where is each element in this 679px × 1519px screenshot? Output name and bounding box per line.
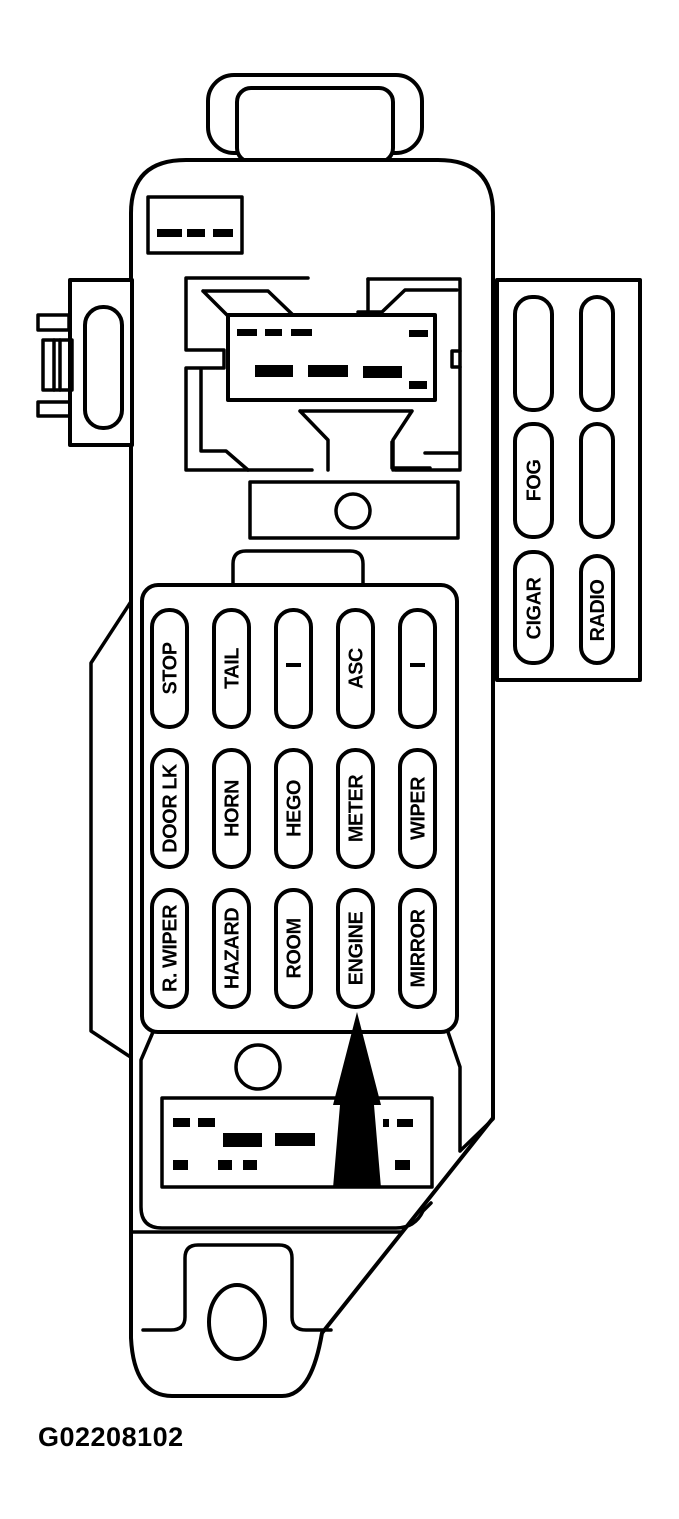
- accessory-panel: FOG CIGAR RADIO: [497, 280, 640, 680]
- top-tab-inner: [237, 88, 393, 162]
- cross-bar: [250, 482, 458, 538]
- fuse-box-diagram: FOG CIGAR RADIO: [0, 0, 679, 1519]
- connector-pin-dash: [237, 329, 257, 336]
- connector-pin-dash: [223, 1133, 262, 1147]
- connector-pin-dash: [255, 365, 293, 377]
- fuse-label: METER: [345, 774, 367, 843]
- connector-pin-dash: [363, 366, 402, 378]
- connector-pin-dash: [218, 1160, 232, 1170]
- fuse-label: ROOM: [283, 918, 305, 978]
- fuse-label: ENGINE: [345, 912, 367, 986]
- fuse-slot-blank: [400, 610, 435, 727]
- blank-fuse-dash: [410, 663, 425, 667]
- connector-pin-dash: [173, 1160, 188, 1170]
- connector-pin-dash: [409, 330, 428, 337]
- fuse-label-cigar: CIGAR: [523, 576, 545, 639]
- fuse-label-fog: FOG: [523, 460, 545, 502]
- connector-pin-dash: [383, 1119, 389, 1127]
- fuse-label: R. WIPER: [159, 904, 181, 992]
- fuse-label: WIPER: [407, 776, 429, 840]
- fuse-label-radio: RADIO: [587, 580, 609, 642]
- fuse-label: DOOR LK: [159, 763, 181, 853]
- fuse-label: HEGO: [283, 780, 305, 837]
- fuse-label: HORN: [221, 780, 243, 837]
- fuse-label: STOP: [159, 642, 181, 694]
- fuse-label: ASC: [345, 648, 367, 689]
- connector-pin-dash: [409, 381, 427, 389]
- fuse-slot: [581, 424, 613, 537]
- fuse-slot: [515, 297, 552, 410]
- connector-pin-dash: [265, 329, 282, 336]
- connector-pin-dash: [198, 1118, 215, 1127]
- top-tab: [208, 75, 422, 162]
- fuse-label: TAIL: [221, 648, 243, 689]
- fuse-label: HAZARD: [221, 908, 243, 989]
- main-connector-housing: [228, 315, 435, 400]
- connector-pin-dash: [275, 1133, 315, 1146]
- upper-connector: [148, 197, 242, 253]
- connector-pin-dash: [395, 1160, 410, 1170]
- connector-pin-dash: [291, 329, 312, 336]
- connector-pin-dash: [397, 1119, 413, 1127]
- fuse-slot: [581, 297, 613, 410]
- fuse-label: MIRROR: [407, 908, 429, 987]
- fuse-slot-blank: [276, 610, 311, 727]
- connector-pin-dash: [243, 1160, 257, 1170]
- figure-caption: G02208102: [38, 1422, 184, 1452]
- blank-fuse-dash: [286, 663, 301, 667]
- upper-connector-outline: [148, 197, 242, 253]
- main-fuse-panel: STOP TAIL ASC DOOR LK HORN HEGO METER WI…: [142, 585, 457, 1032]
- connector-pin-dash: [173, 1118, 190, 1127]
- connector-pin-dash: [213, 229, 233, 237]
- connector-pin-dash: [157, 229, 182, 237]
- connector-pin-dash: [308, 365, 348, 377]
- connector-pin-dash: [187, 229, 205, 237]
